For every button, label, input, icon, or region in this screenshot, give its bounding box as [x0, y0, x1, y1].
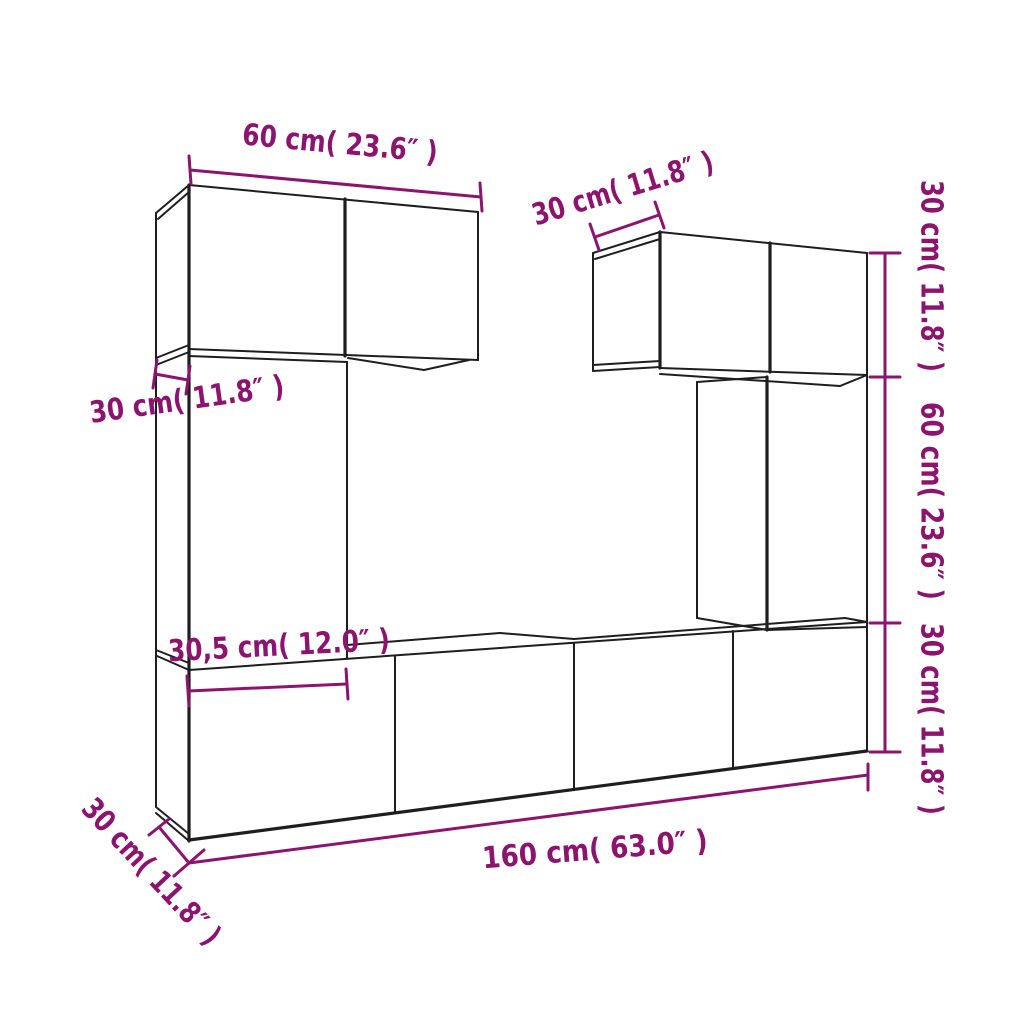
right-column	[697, 377, 867, 630]
dim-label-right-height-middle: 60 cm( 23.6″ )	[914, 402, 949, 600]
dim-label-right-cabinet-depth: 30 cm( 11.8″ )	[528, 145, 718, 233]
left-column	[156, 185, 189, 841]
dim-label-bottom-row-width: 160 cm( 63.0″ )	[481, 824, 709, 877]
dim-label-column-width: 30,5 cm( 12.0″ )	[167, 623, 391, 670]
bottom-row-cabinets	[189, 253, 867, 840]
dim-label-top-cabinet-width: 60 cm( 23.6″ )	[241, 118, 439, 171]
top-left-cabinet	[189, 185, 478, 370]
dimension-column-width	[187, 669, 348, 706]
dim-label-right-height-top: 30 cm( 11.8″ )	[914, 180, 949, 372]
cabinet-line-art: 60 cm( 23.6″ ) 30 cm( 11.8″ ) 30 cm( 11.…	[0, 0, 1024, 1024]
dim-label-bottom-row-depth: 30 cm( 11.8″ )	[74, 791, 228, 952]
dim-label-right-height-bottom: 30 cm( 11.8″ )	[914, 623, 949, 815]
dimension-diagram: 60 cm( 23.6″ ) 30 cm( 11.8″ ) 30 cm( 11.…	[0, 0, 1024, 1024]
top-right-cabinet	[593, 232, 867, 386]
dimension-right-heights	[870, 253, 900, 752]
dimension-top-cabinet-width	[189, 156, 482, 211]
